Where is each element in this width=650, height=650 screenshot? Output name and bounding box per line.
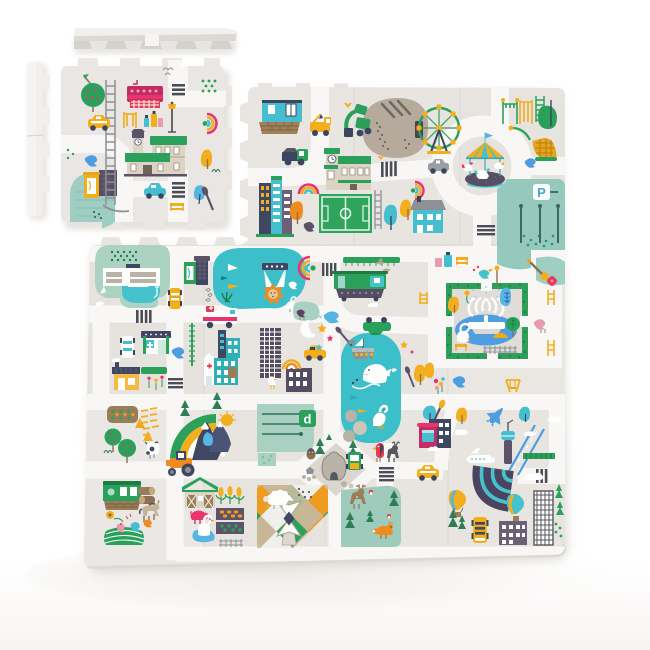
svg-text:P: P (537, 185, 546, 200)
svg-text:d: d (304, 412, 312, 427)
